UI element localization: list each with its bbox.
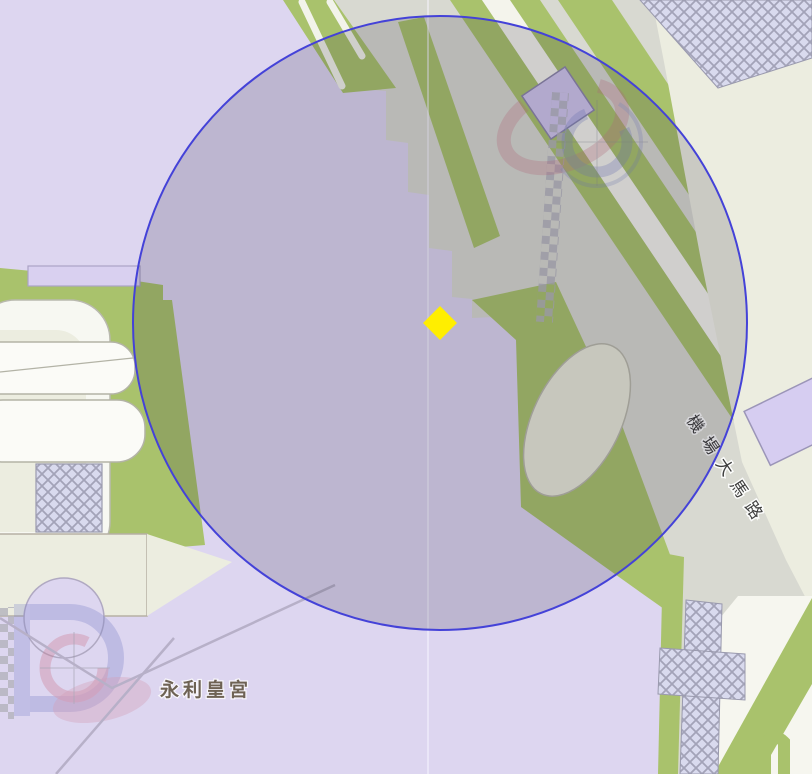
construction-hatch-west (36, 464, 102, 532)
construction-hatch-bulge (658, 648, 745, 700)
map-label-place: 永利皇宮 (159, 678, 252, 701)
terrace-block (0, 400, 145, 462)
building-lavender-west (28, 266, 140, 286)
terrace-block (0, 342, 135, 394)
map-canvas[interactable]: 永利皇宮 機場大馬路 (0, 0, 812, 774)
map-render: 永利皇宮 機場大馬路 (0, 0, 812, 774)
